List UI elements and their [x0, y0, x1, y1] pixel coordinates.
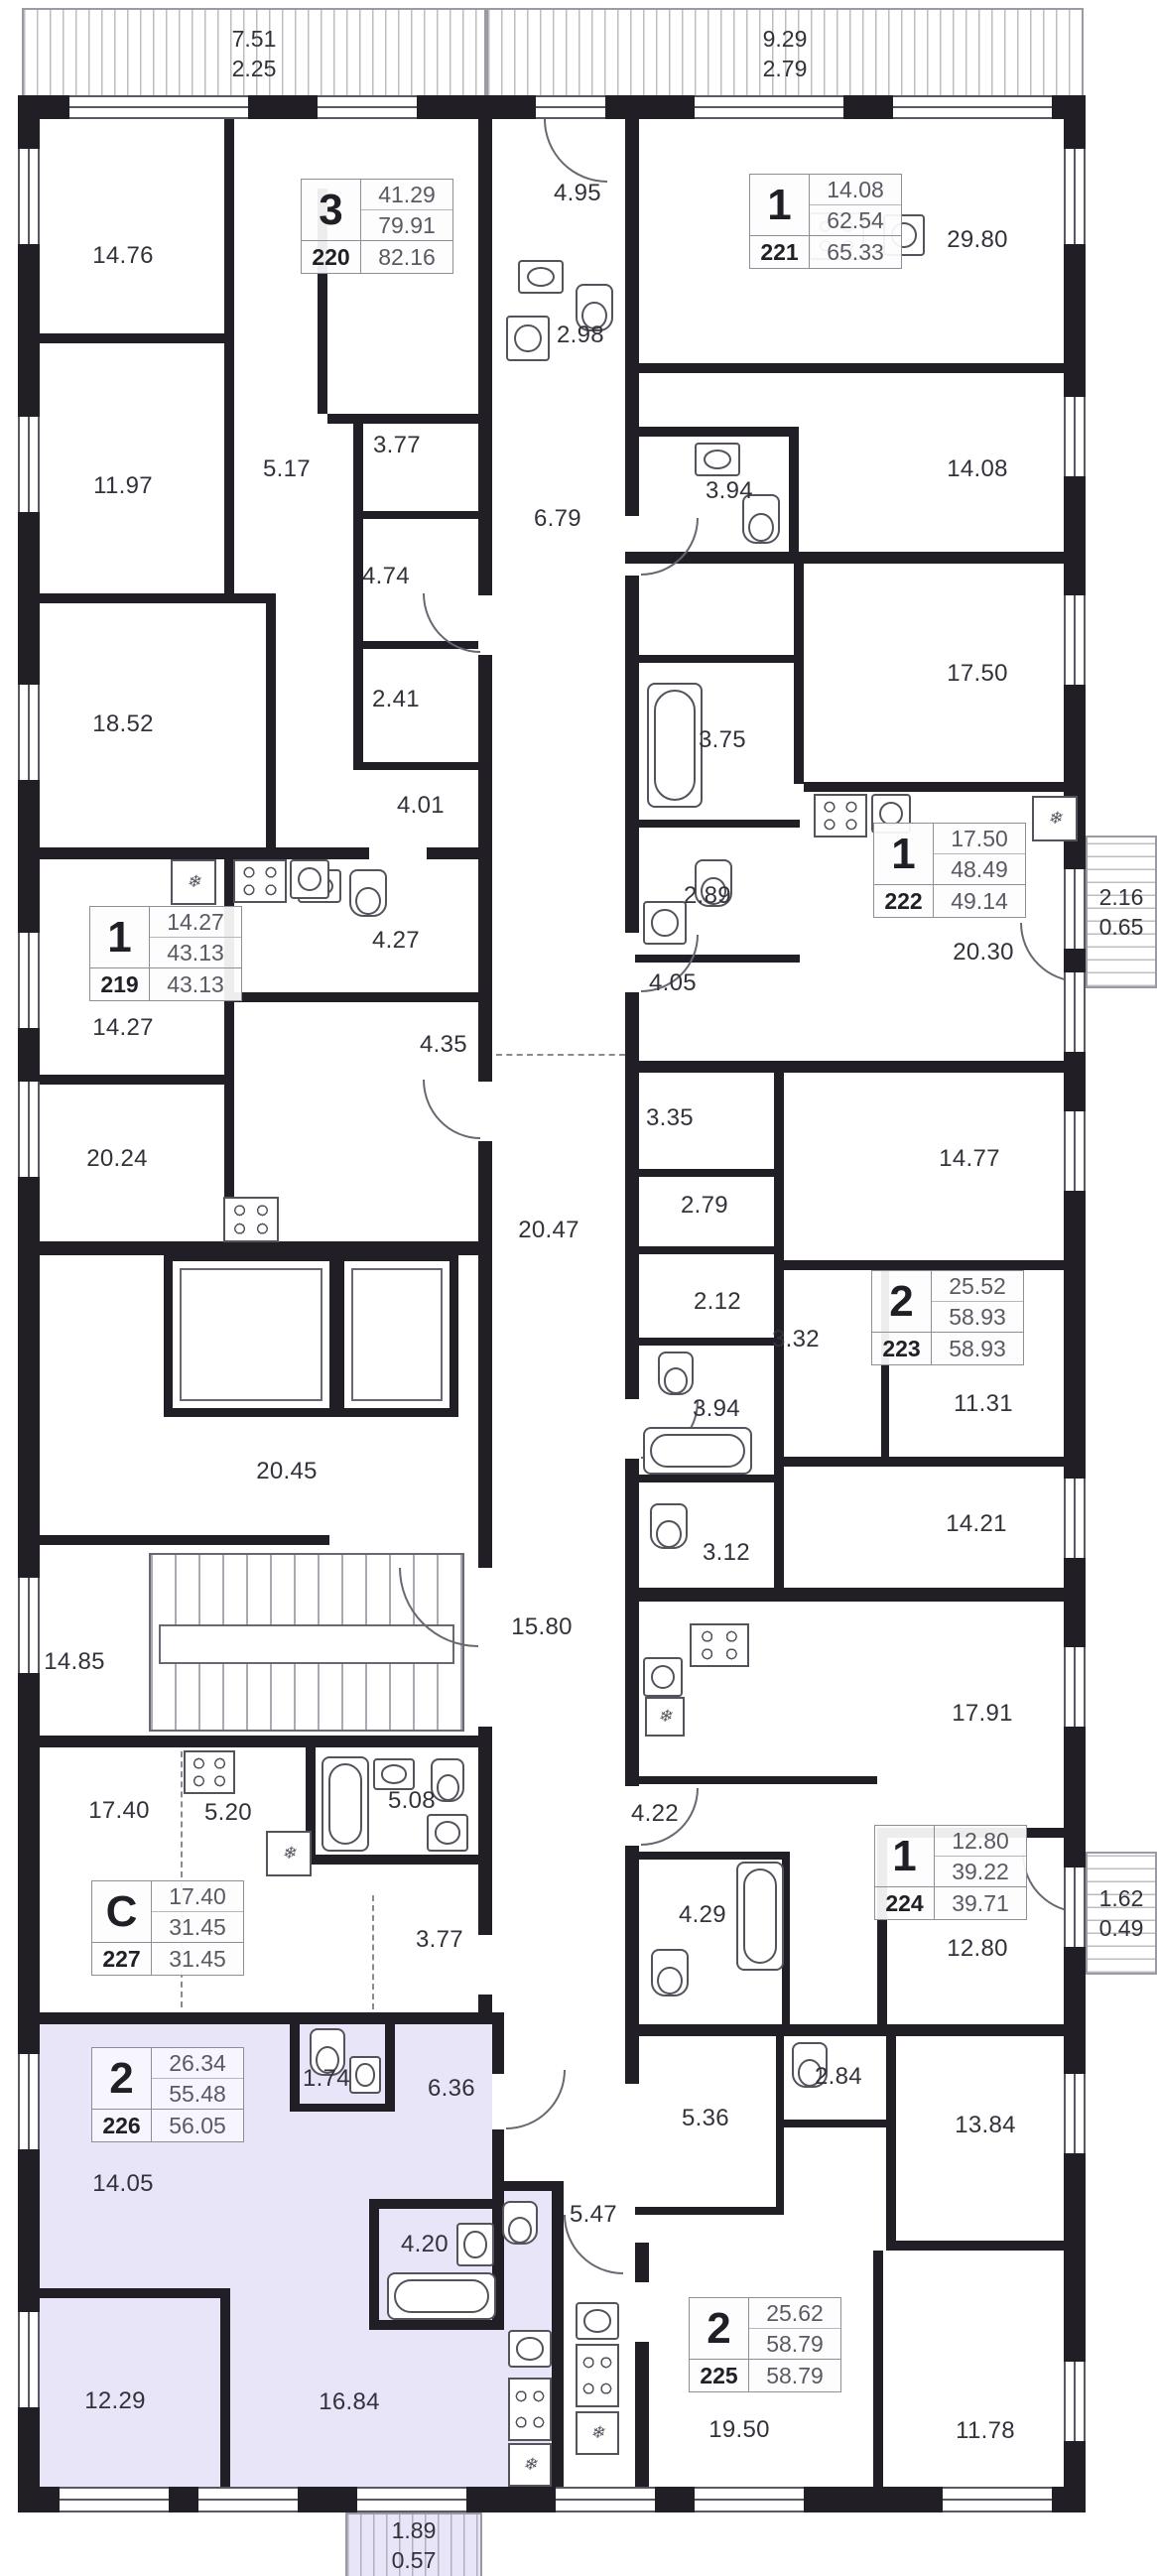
sink-icon [518, 260, 564, 294]
wall [492, 2181, 564, 2191]
wall [478, 95, 492, 595]
window [318, 95, 417, 119]
room-area-label: 18.52 [92, 710, 154, 738]
window [18, 149, 40, 244]
window [695, 2487, 804, 2512]
wall [635, 1246, 780, 1254]
apartment-number: 221 [750, 236, 810, 268]
room-area-label: 3.94 [706, 477, 753, 505]
apartment-type: C [92, 1881, 152, 1943]
wall [290, 2024, 300, 2112]
apartment-total-area: 39.71 [935, 1887, 1026, 1919]
wall [776, 2120, 893, 2127]
window [556, 2487, 655, 2512]
apartment-living-area: 41.29 [361, 180, 452, 210]
apartment-living-area: 17.50 [934, 824, 1025, 854]
apartment-total-area: 65.33 [810, 236, 901, 268]
room-area-label: 12.29 [84, 2387, 146, 2415]
apartment-area: 31.45 [152, 1912, 243, 1943]
door-arc [641, 518, 699, 576]
elevator [335, 1252, 458, 1417]
apartment-number: 227 [92, 1943, 152, 1975]
fridge-snowflake-icon: ❄ [576, 2411, 619, 2455]
balcony-right-upper: 2.16 0.65 [1086, 836, 1157, 988]
wall [353, 511, 478, 519]
window [69, 95, 248, 119]
room-area-label: 14.85 [44, 1648, 105, 1676]
balcony-top-left: 7.51 2.25 [22, 8, 486, 99]
apartment-info-box-219[interactable]: 1 14.27 43.13 219 43.13 [89, 906, 242, 1001]
apartment-number: 226 [92, 2110, 152, 2141]
toilet-icon [431, 1758, 464, 1802]
door-arc [423, 1080, 480, 1139]
toilet-icon [650, 1503, 688, 1549]
apartment-living-area: 14.27 [150, 907, 241, 938]
stove-icon [576, 2344, 619, 2407]
wall [369, 2199, 504, 2209]
wall [492, 2018, 504, 2074]
wall [32, 847, 369, 859]
room-area-label: 20.24 [86, 1145, 148, 1173]
apartment-info-box-227[interactable]: C 17.40 31.45 227 31.45 [91, 1880, 244, 1976]
wall [552, 2181, 564, 2487]
room-area-label: 6.36 [428, 2075, 475, 2103]
window [695, 95, 843, 119]
window [18, 1578, 40, 1673]
wall [625, 552, 1082, 564]
wall [635, 363, 1082, 373]
wall [873, 2251, 883, 2487]
sink-icon [508, 2330, 552, 2368]
room-area-label: 15.80 [511, 1613, 573, 1641]
room-area-label: 2.79 [681, 1192, 728, 1220]
wall [625, 2024, 1082, 2036]
window [60, 2487, 169, 2512]
apartment-type: 3 [302, 180, 361, 241]
balcony-dim: 9.29 [763, 25, 808, 53]
apartment-total-area: 43.13 [150, 968, 241, 1000]
window [1064, 149, 1086, 244]
window [1064, 397, 1086, 476]
bathtub-icon [736, 1862, 784, 1971]
apartment-info-box-224[interactable]: 1 12.80 39.22 224 39.71 [874, 1825, 1027, 1920]
apartment-area: 43.13 [150, 938, 241, 968]
window [357, 2487, 466, 2512]
apartment-info-box-226[interactable]: 2 26.34 55.48 226 56.05 [91, 2047, 244, 2142]
wall [32, 593, 268, 603]
apartment-number: 224 [875, 1887, 935, 1919]
wall [385, 2024, 395, 2112]
balcony-top-right: 9.29 2.79 [486, 8, 1084, 99]
balcony-dim: 0.49 [1099, 1914, 1144, 1942]
balcony-dim: 0.57 [392, 2546, 437, 2574]
room-area-label: 1.74 [303, 2065, 350, 2093]
wall [478, 655, 492, 1082]
window [943, 2487, 1052, 2512]
room-area-label: 4.22 [631, 1800, 679, 1828]
room-area-label: 17.91 [952, 1700, 1013, 1728]
room-area-label: 17.50 [947, 660, 1008, 688]
wall [625, 1588, 1082, 1602]
stove-icon [508, 2378, 552, 2441]
fridge-snowflake-icon: ❄ [171, 859, 216, 905]
dashed-line [496, 1054, 625, 1056]
wall [635, 1852, 784, 1860]
wall [789, 427, 799, 554]
wall [635, 1338, 780, 1346]
door-arc [544, 119, 607, 183]
floor-plan: 7.51 2.25 9.29 2.79 2.16 0.65 1.62 0.49 … [0, 0, 1157, 2576]
fridge-snowflake-icon: ❄ [1032, 796, 1078, 841]
room-area-label: 5.47 [570, 2201, 617, 2229]
wall [635, 655, 800, 663]
wall [784, 1457, 1082, 1467]
wall [625, 1459, 639, 1786]
room-area-label: 11.78 [956, 2417, 1015, 2445]
apartment-living-area: 25.52 [932, 1271, 1023, 1302]
room-area-label: 4.01 [397, 792, 445, 820]
apartment-area: 48.49 [934, 854, 1025, 885]
wall [224, 95, 234, 593]
wall [635, 427, 794, 437]
apartment-type: 2 [690, 2298, 749, 2360]
wall [886, 2241, 1082, 2251]
apartment-total-area: 58.93 [932, 1333, 1023, 1364]
room-area-label: 14.08 [947, 455, 1008, 483]
wall [32, 1736, 492, 1747]
apartment-type: 2 [872, 1271, 932, 1333]
room-area-label: 5.17 [263, 455, 311, 483]
room-area-label: 5.08 [388, 1787, 436, 1815]
apartment-info-box-223[interactable]: 2 25.52 58.93 223 58.93 [871, 1270, 1024, 1365]
wall [625, 1846, 639, 2084]
room-area-label: 4.29 [679, 1901, 726, 1929]
room-area-label: 4.27 [372, 927, 420, 955]
apartment-info-box-221[interactable]: 1 14.08 62.54 221 65.33 [749, 174, 902, 269]
window [198, 2487, 298, 2512]
stove-icon [223, 1197, 279, 1242]
wall [635, 1169, 780, 1177]
apartment-living-area: 26.34 [152, 2048, 243, 2079]
wall [369, 2199, 379, 2330]
wall [794, 564, 804, 784]
room-area-label: 14.27 [92, 1014, 154, 1042]
apartment-type: 1 [874, 824, 934, 885]
wall [478, 1141, 492, 1568]
room-area-label: 3.35 [646, 1104, 694, 1132]
dashed-line [372, 1895, 374, 2009]
door-arc [506, 2070, 566, 2129]
balcony-dim: 2.79 [763, 55, 808, 82]
sink-icon [290, 859, 329, 899]
wall [266, 593, 276, 847]
wall [625, 1061, 1082, 1073]
room-area-label: 17.40 [88, 1797, 150, 1825]
wall [784, 1260, 1082, 1270]
wall [220, 2288, 230, 2487]
apartment-area: 39.22 [935, 1857, 1026, 1887]
room-area-label: 4.95 [554, 180, 601, 207]
room-area-label: 14.21 [946, 1510, 1007, 1538]
bathtub-icon [387, 2272, 496, 2320]
apartment-area: 58.93 [932, 1302, 1023, 1333]
bathtub-icon [321, 1756, 369, 1852]
balcony-dim: 7.51 [232, 25, 277, 53]
wall [427, 847, 478, 859]
wall [635, 1776, 877, 1784]
room-area-label: 12.80 [947, 1935, 1008, 1963]
fridge-snowflake-icon: ❄ [508, 2443, 552, 2487]
window [1064, 1479, 1086, 1558]
room-area-label: 3.32 [772, 1326, 820, 1353]
apartment-info-box-220[interactable]: 3 41.29 79.91 220 82.16 [301, 179, 453, 274]
room-area-label: 29.80 [947, 226, 1008, 254]
window [1064, 1868, 1086, 1947]
window [1064, 595, 1086, 685]
room-area-label: 16.84 [319, 2388, 380, 2416]
fridge-snowflake-icon: ❄ [645, 1697, 685, 1737]
room-area-label: 2.89 [684, 882, 731, 910]
room-area-label: 2.12 [694, 1288, 741, 1316]
sink-icon [576, 2302, 619, 2340]
toilet-icon [658, 1352, 694, 1395]
apartment-total-area: 56.05 [152, 2110, 243, 2141]
window [18, 417, 40, 512]
window [18, 2312, 40, 2407]
apartment-type: 1 [875, 1826, 935, 1887]
room-area-label: 4.20 [401, 2231, 449, 2258]
apartment-living-area: 14.08 [810, 175, 901, 205]
wall [298, 2104, 395, 2112]
stove-icon [690, 1623, 749, 1667]
wall [327, 414, 478, 424]
room-area-label: 5.36 [682, 2105, 729, 2132]
sink-icon [349, 2056, 381, 2094]
apartment-info-box-225[interactable]: 2 25.62 58.79 225 58.79 [689, 2297, 841, 2392]
balcony-dim: 2.25 [232, 55, 277, 82]
room-area-label: 14.77 [939, 1145, 1000, 1173]
room-area-label: 2.84 [815, 2063, 862, 2091]
room-area-label: 3.94 [693, 1395, 740, 1423]
apartment-info-box-222[interactable]: 1 17.50 48.49 222 49.14 [873, 823, 1026, 918]
sink-icon [456, 2223, 494, 2266]
window [1064, 2362, 1086, 2441]
apartment-number: 223 [872, 1333, 932, 1364]
stove-icon [233, 859, 287, 903]
bathtub-icon [643, 1427, 752, 1475]
apartment-type: 1 [90, 907, 150, 968]
room-area-label: 13.84 [955, 2112, 1016, 2139]
apartment-area: 62.54 [810, 205, 901, 236]
wall [32, 2012, 504, 2024]
room-area-label: 14.05 [92, 2170, 154, 2198]
window [893, 95, 1052, 119]
balcony-bottom: 1.89 0.57 [345, 2512, 482, 2576]
elevator [164, 1252, 338, 1417]
window [18, 685, 40, 780]
wall [353, 762, 478, 770]
wall [635, 2342, 649, 2487]
wall [32, 2288, 226, 2298]
washing-machine-icon [427, 1814, 468, 1852]
apartment-number: 225 [690, 2360, 749, 2391]
apartment-total-area: 58.79 [749, 2360, 840, 2391]
apartment-living-area: 25.62 [749, 2298, 840, 2329]
toilet-icon [349, 869, 387, 917]
window [1064, 869, 1086, 949]
apartment-total-area: 49.14 [934, 885, 1025, 917]
balcony-dim: 0.65 [1099, 913, 1144, 941]
wall [804, 782, 1082, 792]
toilet-icon [502, 2201, 538, 2245]
room-area-label: 14.76 [92, 242, 154, 270]
window [18, 2054, 40, 2149]
apartment-total-area: 31.45 [152, 1943, 243, 1975]
wall [478, 1727, 492, 1935]
window [1064, 1111, 1086, 1191]
room-area-label: 3.77 [373, 432, 421, 459]
wall [306, 1855, 480, 1865]
room-area-label: 2.98 [557, 322, 604, 349]
apartment-living-area: 17.40 [152, 1881, 243, 1912]
wall [635, 2207, 776, 2215]
room-area-label: 5.20 [204, 1799, 252, 1827]
apartment-area: 55.48 [152, 2079, 243, 2110]
washing-machine-icon [506, 316, 550, 361]
balcony-dim: 1.62 [1099, 1884, 1144, 1912]
window [18, 1082, 40, 1177]
wall [32, 1075, 226, 1085]
window [18, 933, 40, 1028]
room-area-label: 11.97 [93, 472, 153, 500]
stove-icon [184, 1750, 235, 1794]
wall [625, 95, 639, 516]
balcony-right-lower: 1.62 0.49 [1086, 1852, 1157, 1975]
fridge-snowflake-icon: ❄ [266, 1831, 312, 1876]
window [1064, 2074, 1086, 2153]
window [1064, 1647, 1086, 1727]
room-area-label: 20.47 [518, 1217, 579, 1244]
wall [18, 2487, 1086, 2512]
wall [635, 1475, 780, 1482]
wall [886, 2036, 896, 2249]
room-area-label: 4.05 [649, 969, 697, 997]
apartment-number: 219 [90, 968, 150, 1000]
apartment-type: 1 [750, 175, 810, 236]
room-area-label: 20.30 [953, 939, 1014, 966]
window [1064, 972, 1086, 1052]
room-area-label: 11.31 [954, 1390, 1013, 1418]
wall [32, 333, 226, 343]
stove-icon [814, 794, 867, 837]
sink-icon [695, 443, 740, 476]
room-area-label: 4.74 [362, 563, 410, 590]
apartment-number: 222 [874, 885, 934, 917]
apartment-type: 2 [92, 2048, 152, 2110]
toilet-icon [651, 1949, 689, 1996]
wall [635, 2243, 649, 2282]
balcony-dim: 1.89 [392, 2516, 437, 2544]
room-area-label: 20.45 [256, 1458, 318, 1485]
room-area-label: 2.41 [372, 686, 420, 713]
washing-machine-icon [643, 901, 687, 945]
wall [369, 2320, 504, 2330]
apartment-area: 79.91 [361, 210, 452, 241]
apartment-number: 220 [302, 241, 361, 273]
balcony-dim: 2.16 [1099, 883, 1144, 911]
apartment-area: 58.79 [749, 2329, 840, 2360]
apartment-total-area: 82.16 [361, 241, 452, 273]
room-area-label: 6.79 [534, 505, 581, 533]
sink-icon [373, 1758, 415, 1790]
room-area-label: 19.50 [708, 2416, 770, 2444]
wall [625, 576, 639, 933]
wall [32, 1535, 329, 1545]
wall [635, 820, 800, 828]
wall [234, 992, 478, 1002]
apartment-living-area: 12.80 [935, 1826, 1026, 1857]
room-area-label: 3.75 [699, 726, 746, 754]
room-area-label: 4.35 [420, 1031, 467, 1059]
room-area-label: 3.12 [703, 1539, 750, 1567]
window [536, 95, 605, 119]
room-area-label: 3.77 [416, 1926, 463, 1954]
bathtub-icon [647, 683, 703, 808]
sink-icon [643, 1657, 683, 1697]
